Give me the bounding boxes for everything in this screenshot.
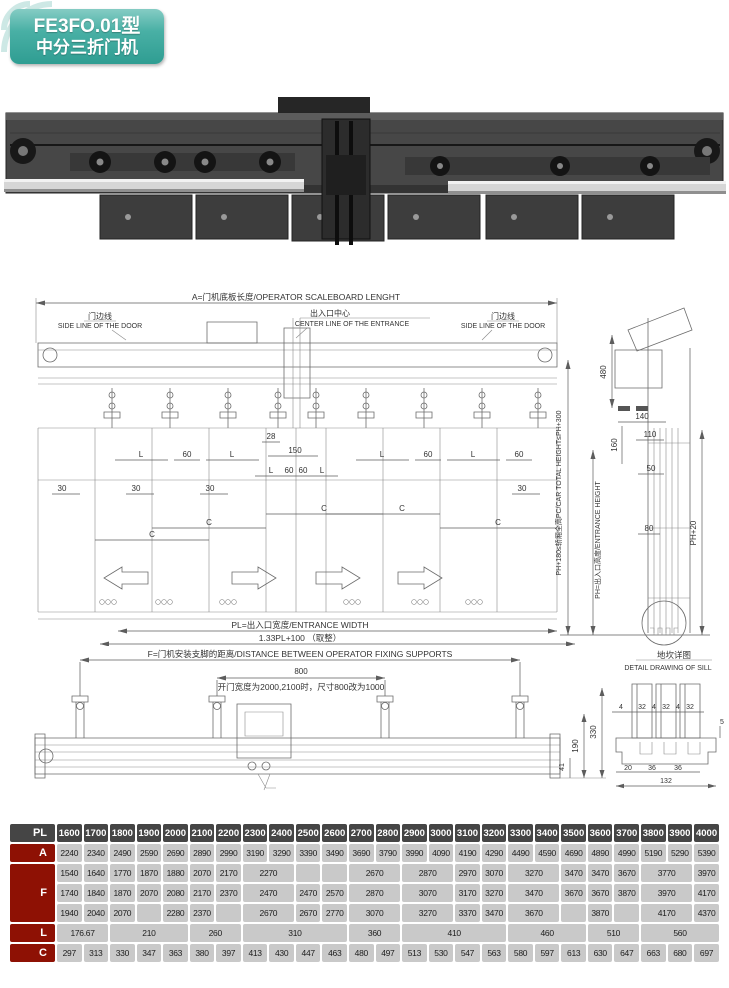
entrance-height-label: PH=出入口高度/ENTRANCE HEIGHT bbox=[593, 480, 602, 598]
table-cell: 3270 bbox=[482, 884, 507, 902]
table-cell bbox=[322, 864, 347, 882]
table-cell: 1940 bbox=[57, 904, 82, 922]
table-cell: 397 bbox=[216, 944, 241, 962]
table-corner-cell: PL bbox=[10, 824, 55, 842]
table-cell: 480 bbox=[349, 944, 374, 962]
table-header-cell: 1800 bbox=[110, 824, 135, 842]
table-header-row: PL16001700180019002000210022002300240025… bbox=[10, 824, 719, 842]
table-cell: 3690 bbox=[349, 844, 374, 862]
table-row-A: A224023402490259026902890299031903290339… bbox=[10, 844, 719, 862]
table-cell: 410 bbox=[402, 924, 506, 942]
table-cell: 2670 bbox=[349, 864, 400, 882]
table-header-cell: 3500 bbox=[561, 824, 586, 842]
table-cell: 4170 bbox=[694, 884, 719, 902]
table-cell: 2270 bbox=[243, 864, 294, 882]
table-cell: 4370 bbox=[694, 904, 719, 922]
table-cell: 2690 bbox=[163, 844, 188, 862]
table-cell: 2870 bbox=[349, 884, 400, 902]
table-header-cell: 2700 bbox=[349, 824, 374, 842]
table-cell: 3770 bbox=[641, 864, 692, 882]
table-header-cell: 2900 bbox=[402, 824, 427, 842]
table-cell: 560 bbox=[641, 924, 719, 942]
table-header-cell: 2500 bbox=[296, 824, 321, 842]
table-cell: 363 bbox=[163, 944, 188, 962]
table-cell: 3170 bbox=[455, 884, 480, 902]
table-cell bbox=[296, 864, 321, 882]
table-header-cell: 3900 bbox=[668, 824, 693, 842]
table-header-cell: 3200 bbox=[482, 824, 507, 842]
table-cell: 447 bbox=[296, 944, 321, 962]
dim-30: 30 bbox=[132, 484, 141, 493]
dim-50: 50 bbox=[647, 464, 656, 473]
table-cell: 380 bbox=[190, 944, 215, 962]
table-cell: 3070 bbox=[349, 904, 400, 922]
table-cell: 3970 bbox=[641, 884, 692, 902]
table-cell: 3670 bbox=[508, 904, 559, 922]
opening-note: 开门宽度为2000,2100时，尺寸800改为1000 bbox=[218, 682, 385, 692]
car-total-height-label: PH+180≤轿厢全高PC/CAR TOTAL HEIGHT≤PH+300 bbox=[554, 410, 563, 575]
table-cell: 513 bbox=[402, 944, 427, 962]
table-cell: 630 bbox=[588, 944, 613, 962]
table-cell: 2670 bbox=[296, 904, 321, 922]
table-header-cell: 3300 bbox=[508, 824, 533, 842]
table-cell: 310 bbox=[243, 924, 347, 942]
sill-dim-32: 32 bbox=[662, 704, 670, 711]
dim-150: 150 bbox=[288, 446, 302, 455]
table-cell: 530 bbox=[429, 944, 454, 962]
table-cell: 4170 bbox=[641, 904, 692, 922]
row-label-F: F bbox=[10, 864, 55, 922]
table-cell: 176.67 bbox=[57, 924, 108, 942]
table-cell: 3370 bbox=[455, 904, 480, 922]
dim-60: 60 bbox=[299, 466, 308, 475]
fixing-supports-drawing: F=门机安装支脚的距离/DISTANCE BETWEEN OPERATOR FI… bbox=[0, 646, 729, 814]
table-cell: 2890 bbox=[190, 844, 215, 862]
table-cell: 580 bbox=[508, 944, 533, 962]
center-line-en: CENTER LINE OF THE ENTRANCE bbox=[295, 321, 410, 328]
model-number: FE3FO.01型 bbox=[34, 16, 141, 38]
table-header-cell: 3100 bbox=[455, 824, 480, 842]
table-cell: 3870 bbox=[614, 884, 639, 902]
table-cell: 597 bbox=[535, 944, 560, 962]
pl-width-label: PL=出入口宽度/ENTRANCE WIDTH bbox=[231, 620, 368, 630]
table-cell: 1770 bbox=[110, 864, 135, 882]
sill-dim-132: 132 bbox=[660, 778, 672, 785]
table-cell: 2770 bbox=[322, 904, 347, 922]
table-cell: 3270 bbox=[508, 864, 559, 882]
table-cell: 563 bbox=[482, 944, 507, 962]
dim-l: L bbox=[230, 450, 235, 459]
table-row-C: C297313330347363380397413430447463480497… bbox=[10, 944, 719, 962]
dim-l: L bbox=[320, 466, 325, 475]
table-cell bbox=[216, 904, 241, 922]
sill-dim-4: 4 bbox=[619, 704, 623, 711]
table-header-cell: 3800 bbox=[641, 824, 666, 842]
table-cell: 497 bbox=[376, 944, 401, 962]
dim-30: 30 bbox=[58, 484, 67, 493]
table-cell: 3670 bbox=[561, 884, 586, 902]
table-cell: 2490 bbox=[110, 844, 135, 862]
dim-a-label: A=门机底板长度/OPERATOR SCALEBOARD LENGHT bbox=[192, 292, 400, 302]
table-cell: 697 bbox=[694, 944, 719, 962]
table-cell: 3070 bbox=[402, 884, 453, 902]
sill-dim-36: 36 bbox=[674, 765, 682, 772]
table-cell: 1740 bbox=[57, 884, 82, 902]
dim-l: L bbox=[380, 450, 385, 459]
table-cell: 1640 bbox=[84, 864, 109, 882]
dim-480: 480 bbox=[599, 365, 608, 379]
table-cell: 613 bbox=[561, 944, 586, 962]
table-cell: 463 bbox=[322, 944, 347, 962]
dim-60: 60 bbox=[515, 450, 524, 459]
table-header-cell: 2200 bbox=[216, 824, 241, 842]
table-cell: 330 bbox=[110, 944, 135, 962]
table-cell: 1870 bbox=[110, 884, 135, 902]
dim-800: 800 bbox=[294, 667, 308, 676]
table-row-F: 1740184018702070208021702370247024702570… bbox=[10, 884, 719, 902]
table-cell: 360 bbox=[349, 924, 400, 942]
table-cell: 2070 bbox=[110, 904, 135, 922]
table-cell: 297 bbox=[57, 944, 82, 962]
table-cell: 3190 bbox=[243, 844, 268, 862]
dim-f-label: F=门机安装支脚的距离/DISTANCE BETWEEN OPERATOR FI… bbox=[148, 649, 453, 659]
table-cell: 4090 bbox=[429, 844, 454, 862]
sill-dim-36: 36 bbox=[648, 765, 656, 772]
table-cell: 2570 bbox=[322, 884, 347, 902]
table-cell: 2080 bbox=[163, 884, 188, 902]
table-cell: 347 bbox=[137, 944, 162, 962]
table-cell: 5390 bbox=[694, 844, 719, 862]
dim-c: C bbox=[149, 530, 155, 539]
table-cell: 3790 bbox=[376, 844, 401, 862]
table-cell bbox=[614, 904, 639, 922]
center-line-cn: 出入口中心 bbox=[310, 308, 350, 318]
table-cell: 3990 bbox=[402, 844, 427, 862]
dim-160: 160 bbox=[610, 438, 619, 452]
table-cell: 2340 bbox=[84, 844, 109, 862]
row-label-A: A bbox=[10, 844, 55, 862]
dim-c: C bbox=[495, 518, 501, 527]
table-cell: 2970 bbox=[455, 864, 480, 882]
table-cell bbox=[137, 904, 162, 922]
table-header-cell: 3400 bbox=[535, 824, 560, 842]
table-header-cell: 2600 bbox=[322, 824, 347, 842]
dim-190: 190 bbox=[571, 739, 580, 753]
table-cell: 3270 bbox=[402, 904, 453, 922]
table-cell bbox=[561, 904, 586, 922]
table-header-cell: 1700 bbox=[84, 824, 109, 842]
table-cell: 4890 bbox=[588, 844, 613, 862]
sill-detail-drawing: 地坎详图 DETAIL DRAWING OF SILL 4 32 4 32 4 … bbox=[612, 650, 724, 788]
table-row-F: F154016401770187018802070217022702670287… bbox=[10, 864, 719, 882]
side-line-left-cn: 门边线 bbox=[88, 311, 112, 321]
table-cell: 3470 bbox=[508, 884, 559, 902]
table-cell: 2070 bbox=[190, 864, 215, 882]
table-cell: 3470 bbox=[482, 904, 507, 922]
table-cell: 3470 bbox=[561, 864, 586, 882]
dim-41: 41 bbox=[559, 763, 566, 771]
table-header-cell: 3000 bbox=[429, 824, 454, 842]
dim-l: L bbox=[269, 466, 274, 475]
table-cell: 2280 bbox=[163, 904, 188, 922]
table-header-cell: 1600 bbox=[57, 824, 82, 842]
table-header-cell: 2400 bbox=[269, 824, 294, 842]
row-label-C: C bbox=[10, 944, 55, 962]
table-cell: 2470 bbox=[243, 884, 294, 902]
product-photo bbox=[0, 95, 729, 245]
table-cell: 1540 bbox=[57, 864, 82, 882]
dim-l: L bbox=[139, 450, 144, 459]
table-cell: 3290 bbox=[269, 844, 294, 862]
table-cell: 2070 bbox=[137, 884, 162, 902]
table-cell: 3070 bbox=[482, 864, 507, 882]
dim-30: 30 bbox=[206, 484, 215, 493]
table-cell: 3390 bbox=[296, 844, 321, 862]
sill-title-en: DETAIL DRAWING OF SILL bbox=[624, 665, 711, 672]
dim-c: C bbox=[206, 518, 212, 527]
table-cell: 460 bbox=[508, 924, 586, 942]
datasheet-page: FE3FO.01型 中分三折门机 bbox=[0, 0, 729, 988]
sill-title-cn: 地坎详图 bbox=[657, 650, 691, 660]
dim-60: 60 bbox=[424, 450, 433, 459]
table-cell: 5190 bbox=[641, 844, 666, 862]
dim-60: 60 bbox=[183, 450, 192, 459]
table-cell: 2170 bbox=[190, 884, 215, 902]
table-cell: 313 bbox=[84, 944, 109, 962]
table-cell: 2240 bbox=[57, 844, 82, 862]
table-cell: 2670 bbox=[243, 904, 294, 922]
table-cell: 1840 bbox=[84, 884, 109, 902]
sill-dim-20: 20 bbox=[624, 765, 632, 772]
table-cell: 2040 bbox=[84, 904, 109, 922]
table-header-cell: 2100 bbox=[190, 824, 215, 842]
front-elevation-drawing: A=门机底板长度/OPERATOR SCALEBOARD LENGHT 门边线 … bbox=[0, 288, 729, 646]
dim-ph20: PH+20 bbox=[689, 520, 698, 545]
table-cell: 4190 bbox=[455, 844, 480, 862]
table-header-cell: 3600 bbox=[588, 824, 613, 842]
dim-30: 30 bbox=[518, 484, 527, 493]
sill-dim-4: 4 bbox=[676, 704, 680, 711]
dim-330: 330 bbox=[589, 725, 598, 739]
model-name: 中分三折门机 bbox=[36, 38, 138, 58]
table-cell: 2870 bbox=[402, 864, 453, 882]
dim-c: C bbox=[321, 504, 327, 513]
table-cell: 4490 bbox=[508, 844, 533, 862]
dim-110: 110 bbox=[644, 430, 657, 439]
model-badge: FE3FO.01型 中分三折门机 bbox=[10, 9, 164, 64]
table-cell: 1870 bbox=[137, 864, 162, 882]
table-cell: 4290 bbox=[482, 844, 507, 862]
table-header-cell: 2800 bbox=[376, 824, 401, 842]
table-cell: 4990 bbox=[614, 844, 639, 862]
table-cell: 510 bbox=[588, 924, 639, 942]
pl-formula-label: 1.33PL+100 （取整） bbox=[259, 633, 341, 643]
table-cell: 210 bbox=[110, 924, 188, 942]
dim-28: 28 bbox=[267, 432, 276, 441]
spec-table: PL16001700180019002000210022002300240025… bbox=[8, 822, 721, 964]
sill-dim-4: 4 bbox=[652, 704, 656, 711]
sill-dim-5: 5 bbox=[720, 719, 724, 726]
table-cell: 547 bbox=[455, 944, 480, 962]
side-line-right-en: SIDE LINE OF THE DOOR bbox=[461, 323, 545, 330]
table-cell: 2370 bbox=[216, 884, 241, 902]
table-cell: 5290 bbox=[668, 844, 693, 862]
dim-60: 60 bbox=[285, 466, 294, 475]
table-cell: 4690 bbox=[561, 844, 586, 862]
table-cell: 3870 bbox=[588, 904, 613, 922]
sill-dim-32: 32 bbox=[638, 704, 646, 711]
table-cell: 2170 bbox=[216, 864, 241, 882]
table-header-cell: 2300 bbox=[243, 824, 268, 842]
table-cell: 3670 bbox=[588, 884, 613, 902]
table-header-cell: 3700 bbox=[614, 824, 639, 842]
table-row-F: 1940204020702280237026702670277030703270… bbox=[10, 904, 719, 922]
table-cell: 3670 bbox=[614, 864, 639, 882]
side-line-right-cn: 门边线 bbox=[491, 311, 515, 321]
table-cell: 3970 bbox=[694, 864, 719, 882]
dim-80: 80 bbox=[645, 524, 654, 533]
table-cell: 413 bbox=[243, 944, 268, 962]
table-cell: 647 bbox=[614, 944, 639, 962]
table-header-cell: 1900 bbox=[137, 824, 162, 842]
table-cell: 2990 bbox=[216, 844, 241, 862]
table-cell: 680 bbox=[668, 944, 693, 962]
table-row-L: L176.67210260310360410460510560 bbox=[10, 924, 719, 942]
table-cell: 430 bbox=[269, 944, 294, 962]
dim-l: L bbox=[471, 450, 476, 459]
dim-c: C bbox=[399, 504, 405, 513]
dim-140: 140 bbox=[635, 412, 649, 421]
table-cell: 2470 bbox=[296, 884, 321, 902]
table-cell: 2590 bbox=[137, 844, 162, 862]
sill-dim-32: 32 bbox=[686, 704, 694, 711]
table-header-cell: 4000 bbox=[694, 824, 719, 842]
table-cell: 1880 bbox=[163, 864, 188, 882]
table-cell: 260 bbox=[190, 924, 241, 942]
side-section-drawing: 480 140 160 110 50 80 PH+180≤轿厢全高PC/CAR … bbox=[554, 308, 710, 645]
table-cell: 663 bbox=[641, 944, 666, 962]
row-label-L: L bbox=[10, 924, 55, 942]
table-cell: 4590 bbox=[535, 844, 560, 862]
table-cell: 3470 bbox=[588, 864, 613, 882]
side-line-left-en: SIDE LINE OF THE DOOR bbox=[58, 323, 142, 330]
table-cell: 2370 bbox=[190, 904, 215, 922]
table-header-cell: 2000 bbox=[163, 824, 188, 842]
table-cell: 3490 bbox=[322, 844, 347, 862]
